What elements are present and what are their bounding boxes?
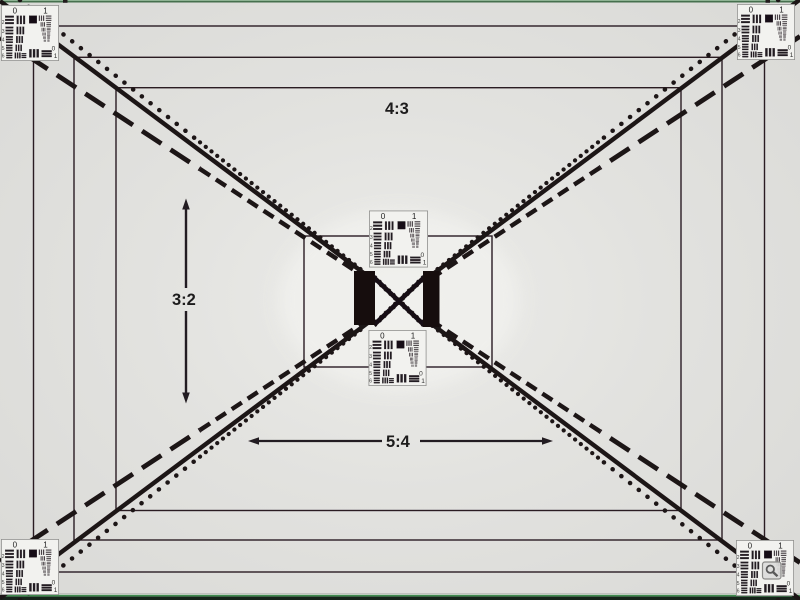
svg-text:4:3: 4:3 bbox=[385, 100, 409, 118]
svg-text:5:4: 5:4 bbox=[386, 433, 411, 451]
svg-text:3:2: 3:2 bbox=[172, 291, 196, 309]
